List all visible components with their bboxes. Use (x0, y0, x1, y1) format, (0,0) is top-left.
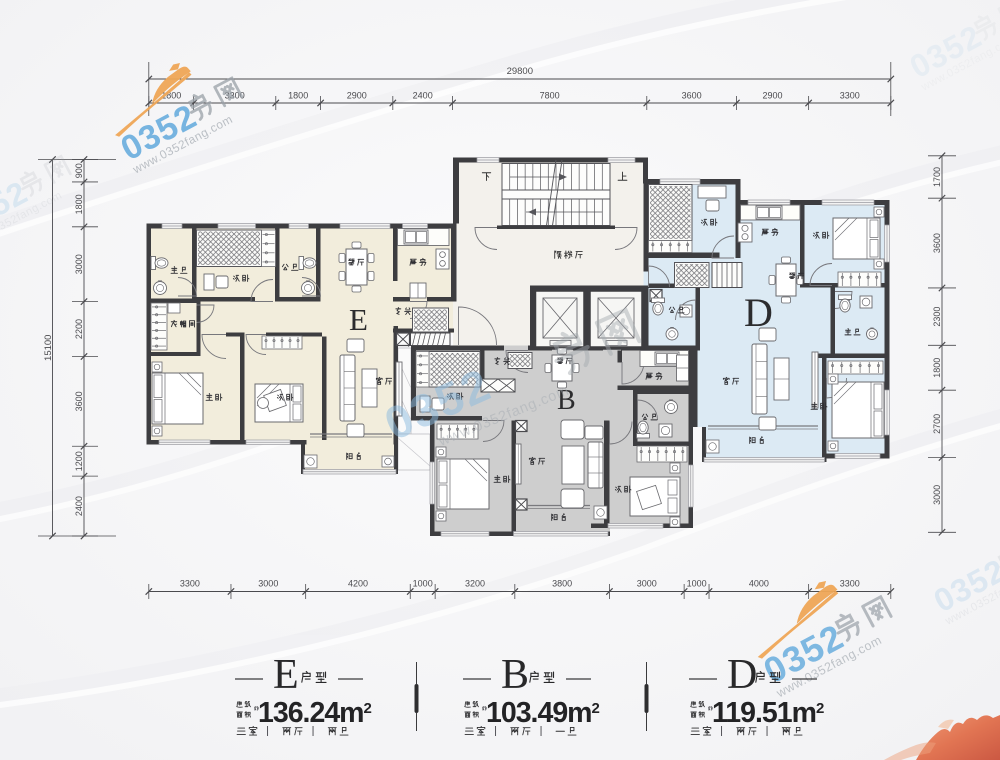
svg-text:3800: 3800 (552, 579, 572, 589)
svg-text:1800: 1800 (74, 194, 84, 214)
svg-text:119.51m2: 119.51m2 (712, 697, 824, 729)
svg-text:3600: 3600 (682, 91, 702, 101)
svg-text:2300: 2300 (932, 307, 942, 327)
svg-text:2400: 2400 (413, 91, 433, 101)
svg-text:3000: 3000 (932, 485, 942, 505)
svg-text:7800: 7800 (540, 91, 560, 101)
svg-text:3300: 3300 (840, 579, 860, 589)
svg-text:E: E (349, 302, 368, 337)
svg-text:3600: 3600 (74, 391, 84, 411)
svg-text:103.49m2: 103.49m2 (486, 697, 600, 729)
svg-text:2400: 2400 (74, 496, 84, 516)
svg-text:D: D (727, 652, 757, 698)
svg-text:3300: 3300 (840, 91, 860, 101)
svg-text:4000: 4000 (749, 579, 769, 589)
svg-text:3600: 3600 (932, 233, 942, 253)
svg-text:1000: 1000 (413, 579, 433, 589)
svg-text:E: E (273, 652, 299, 698)
svg-text:4200: 4200 (348, 579, 368, 589)
svg-text:3000: 3000 (258, 579, 278, 589)
svg-text:D: D (744, 290, 773, 335)
svg-text:3300: 3300 (180, 579, 200, 589)
svg-text:29800: 29800 (507, 66, 533, 77)
svg-text:1000: 1000 (687, 579, 707, 589)
svg-text:1800: 1800 (932, 358, 942, 378)
svg-text:900: 900 (74, 163, 84, 178)
svg-text:2900: 2900 (763, 91, 783, 101)
svg-text:2900: 2900 (347, 91, 367, 101)
svg-text:2700: 2700 (932, 414, 942, 434)
svg-text:1200: 1200 (74, 451, 84, 471)
svg-text:1700: 1700 (932, 167, 942, 187)
svg-text:3000: 3000 (74, 254, 84, 274)
svg-text:3000: 3000 (637, 579, 657, 589)
svg-text:1800: 1800 (288, 91, 308, 101)
svg-text:2200: 2200 (74, 319, 84, 339)
svg-text:3200: 3200 (465, 579, 485, 589)
svg-text:B: B (501, 652, 529, 698)
svg-text:15100: 15100 (43, 335, 54, 361)
svg-text:136.24m2: 136.24m2 (258, 697, 372, 729)
